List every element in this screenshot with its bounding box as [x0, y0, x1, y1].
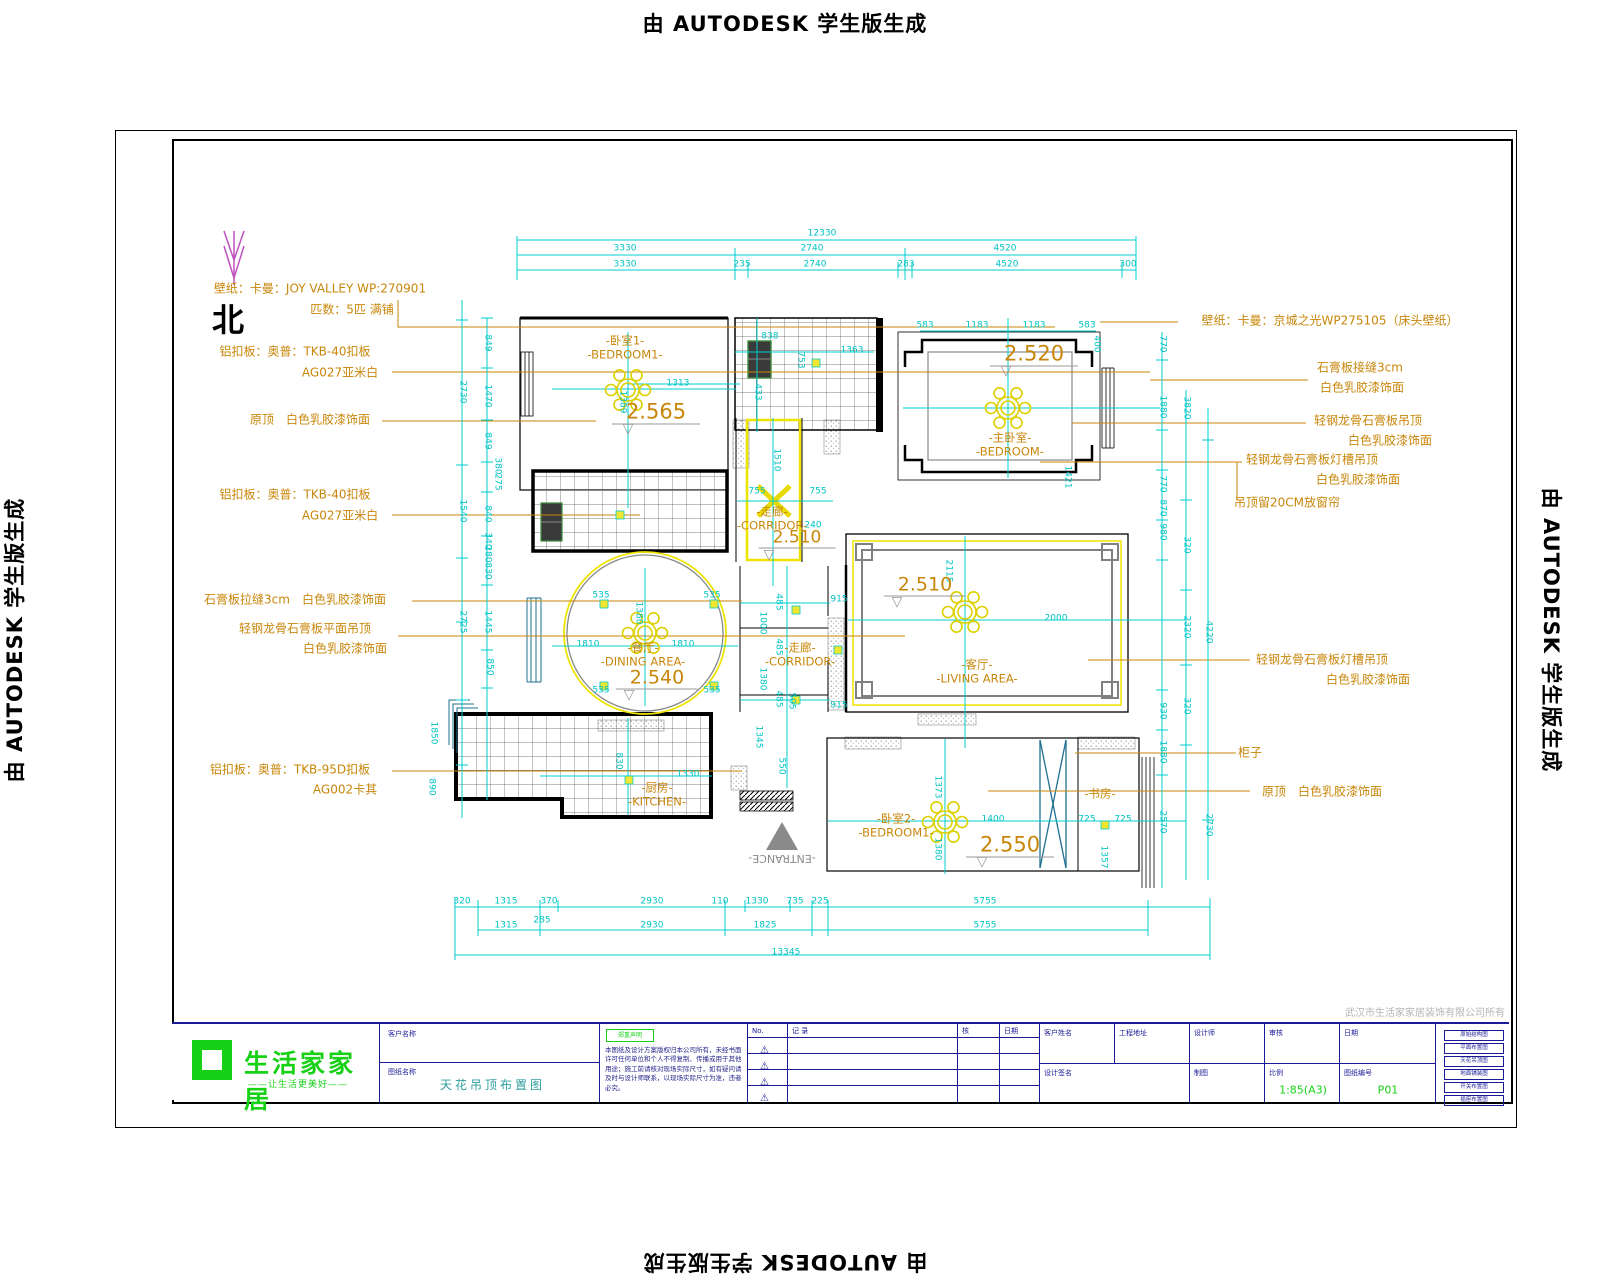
drawing-list: 原始结构图 平面布置图 天花吊顶图 地面铺装图 开关布置图 插座布置图 [1444, 1030, 1504, 1108]
check-field-label: 审核 [1269, 1028, 1283, 1038]
annotation-label: AG002卡其 [313, 783, 377, 796]
annotation-label: 原顶 白色乳胶漆饰面 [250, 413, 370, 426]
drawing-list-item: 天花吊顶图 [1444, 1056, 1504, 1067]
annotation-label: 白色乳胶漆饰面 [1320, 381, 1404, 394]
company-slogan: ——让生活更美好—— [248, 1077, 348, 1090]
drawing-list-item: 地面铺装图 [1444, 1069, 1504, 1080]
dimension-label: 915 [830, 596, 847, 605]
dimension-label: 890 [427, 778, 436, 795]
annotation-label: 原顶 白色乳胶漆饰面 [1262, 785, 1382, 798]
room-label-en: -BEDROOM1- [587, 349, 662, 361]
dimension-label: 2930 [641, 898, 664, 907]
notes-header: 郑重声明 [606, 1029, 654, 1042]
ceiling-level-value: 2.510 [759, 530, 836, 549]
dimension-label: 1330 [746, 898, 769, 907]
level-triangle-icon: ▽ [624, 688, 635, 702]
annotation-label: 匹数：5匹 满铺 [310, 303, 393, 316]
dimension-label: 400 [1092, 335, 1101, 352]
dimension-label: 1400 [982, 816, 1005, 825]
dimension-label: 2730 [1204, 814, 1213, 837]
dimension-label: 1357 [1099, 846, 1108, 869]
dimension-label: 1421 [1063, 466, 1072, 489]
drawing-name-label: 图纸名称 [388, 1067, 416, 1077]
dimension-label: 3330 [614, 245, 637, 254]
dimension-label: 485 [774, 690, 783, 707]
level-triangle-icon: ▽ [623, 422, 634, 436]
dimension-label: 1373 [933, 776, 942, 799]
room-label-cn: -走廊- [784, 642, 815, 654]
room-label-en: -BEDROOM1- [858, 827, 933, 839]
dimension-label: 2320 [1182, 616, 1191, 639]
annotation-label: 柜子 [1238, 746, 1262, 759]
dimension-label: 1445 [483, 611, 492, 634]
annotation-label: 白色乳胶漆饰面 [1316, 473, 1400, 486]
annotation-label: 轻钢龙骨石膏板灯槽吊顶 [1246, 453, 1378, 466]
dimension-label: 1380 [634, 602, 643, 625]
dimension-label: 4520 [994, 245, 1017, 254]
dimension-label: 535 [592, 592, 609, 601]
dimension-label: 12330 [808, 230, 837, 239]
dimension-label: 1315 [495, 898, 518, 907]
dimension-label: 433 [753, 383, 762, 400]
dimension-label: 980 [1158, 523, 1167, 540]
annotation-label: 壁纸：卡曼：京城之光WP275105（床头壁纸） [1202, 314, 1459, 327]
dimension-label: 1810 [577, 641, 600, 650]
annotation-label: 壁纸：卡曼：JOY VALLEY WP:270901 [214, 282, 426, 295]
sheet-field-label: 图纸编号 [1344, 1068, 1372, 1078]
dimension-label: 5755 [974, 898, 997, 907]
dimension-label: 830 [483, 562, 492, 579]
date-field-label: 日期 [1344, 1028, 1358, 1038]
signature-field-label: 设计签名 [1044, 1068, 1072, 1078]
annotation-label: 铝扣板：奥普：TKB-95D扣板 [210, 763, 370, 776]
dimension-label: 1380 [933, 838, 942, 861]
dimension-label: 280 [483, 545, 492, 562]
dimension-label: 275 [493, 473, 502, 490]
dimension-label: 2570 [1158, 811, 1167, 834]
north-label: 北 [212, 295, 244, 341]
room-label-cn: -走廊- [756, 506, 787, 518]
room-label-en: -LIVING AREA- [936, 673, 1017, 685]
annotation-label: AG027亚米白 [302, 366, 378, 379]
designer-field-label: 设计师 [1194, 1028, 1215, 1038]
drawing-list-item: 平面布置图 [1444, 1043, 1504, 1054]
drawing-list-item: 开关布置图 [1444, 1082, 1504, 1093]
dimension-label: 320 [1182, 536, 1191, 553]
annotation-label: 吊顶留20CM放窗帘 [1234, 496, 1340, 509]
dimension-label: 1540 [458, 500, 467, 523]
dimension-label: 1380 [758, 668, 767, 691]
dimension-label: 1183 [1023, 322, 1046, 331]
dimension-label: 838 [761, 333, 778, 342]
dimension-label: 849 [483, 334, 492, 351]
dimension-label: 535 [703, 592, 720, 601]
dimension-label: 3820 [1182, 397, 1191, 420]
annotation-label: 石膏板拉缝3cm 白色乳胶漆饰面 [204, 593, 386, 606]
room-label-en: -CORRIDOR- [765, 656, 835, 668]
dimension-label: 2740 [801, 245, 824, 254]
dimension-label: 915 [830, 702, 847, 711]
dimension-label: 4520 [996, 261, 1019, 270]
annotation-label: 轻钢龙骨石膏板平面吊顶 [239, 622, 371, 635]
cad-ceiling-plan-screenshot: { "watermark": { "text": "由 AUTODESK 学生版… [0, 0, 1600, 1280]
dimension-label: 505 [787, 692, 796, 709]
dimension-label: 380 [493, 457, 502, 474]
rev-no-header: No. [748, 1024, 788, 1038]
address-field-label: 工程地址 [1119, 1028, 1147, 1038]
dimension-label: 1313 [667, 380, 690, 389]
dimension-label: 5755 [974, 922, 997, 931]
room-label-cn: -客厅- [961, 659, 992, 671]
room-label-cn: -餐厅- [627, 642, 658, 654]
dimension-label: 2725 [458, 611, 467, 634]
title-block-fields: 客户姓名 工程地址 设计师 审核 日期 设计签名 制图 比例 1:85(A3) … [1040, 1024, 1436, 1102]
sheet-number: P01 [1378, 1084, 1399, 1097]
annotation-label: 轻钢龙骨石膏板吊顶 [1314, 414, 1422, 427]
copyright-note: 武汉市生活家家居装饰有限公司所有 [1345, 1004, 1505, 1019]
dimension-label: 485 [774, 638, 783, 655]
dimension-label: 285 [533, 917, 550, 926]
room-label-cn: -书房- [1084, 788, 1115, 800]
dimension-label: 1825 [754, 922, 777, 931]
level-triangle-icon: ▽ [977, 855, 988, 869]
dimension-label: 1315 [495, 922, 518, 931]
dimension-label: 770 [1158, 475, 1167, 492]
level-triangle-icon: ▽ [892, 595, 903, 609]
dimension-label: 830 [614, 752, 623, 769]
dimension-label: 320 [1182, 697, 1191, 714]
room-label-en: -KITCHEN- [628, 796, 686, 808]
room-label-cn: -卧室1- [606, 335, 645, 347]
rev-desc-header: 记 录 [788, 1024, 958, 1038]
dimension-label: 755 [809, 488, 826, 497]
dimension-label: 225 [811, 898, 828, 907]
dimension-label: 4220 [1204, 621, 1213, 644]
scale-field-label: 比例 [1269, 1068, 1283, 1078]
annotation-label: 铝扣板：奥普：TKB-40扣板 [219, 488, 370, 501]
level-triangle-icon: ▽ [1001, 364, 1012, 378]
dimension-label: 1810 [672, 641, 695, 650]
annotation-label: 石膏板接缝3cm [1317, 361, 1403, 374]
dimension-label: 1510 [772, 449, 781, 472]
dimension-label: 3330 [614, 261, 637, 270]
annotation-label: 白色乳胶漆饰面 [1348, 434, 1432, 447]
dimension-label: 849 [483, 432, 492, 449]
dimension-label: 583 [1078, 322, 1095, 331]
dimension-label: 725 [1078, 816, 1095, 825]
title-block-name-cell: 客户名称 图纸名称 天花吊顶布置图 [380, 1024, 600, 1102]
dimension-label: 870 [1158, 499, 1167, 516]
scale-value: 1:85(A3) [1279, 1084, 1327, 1097]
annotation-label: AG027亚米白 [302, 509, 378, 522]
dimension-label: 1850 [429, 722, 438, 745]
client-field-label: 客户姓名 [1044, 1028, 1072, 1038]
dimension-label: 753 [796, 351, 805, 368]
dimension-label: 1345 [754, 726, 763, 749]
title-block: 生活家家居 ——让生活更美好—— 客户名称 图纸名称 天花吊顶布置图 郑重声明 … [172, 1022, 1509, 1100]
dimension-label: 283 [897, 261, 914, 270]
dimension-label: 2740 [804, 261, 827, 270]
drawing-list-item: 插座布置图 [1444, 1095, 1504, 1106]
dimension-label: 235 [733, 261, 750, 270]
title-block-notes-cell: 郑重声明 本图纸及设计方案版权归本公司所有，未经书面许可任何单位和个人不得复制、… [600, 1024, 748, 1102]
dimension-label: 850 [485, 658, 494, 675]
notes-body: 本图纸及设计方案版权归本公司所有，未经书面许可任何单位和个人不得复制、传播或用于… [605, 1046, 745, 1093]
title-block-logo-cell: 生活家家居 ——让生活更美好—— [172, 1024, 380, 1102]
dimension-label: 1880 [1158, 396, 1167, 419]
dimension-label: 735 [786, 898, 803, 907]
drawing-title: 天花吊顶布置图 [440, 1076, 545, 1093]
dimension-label: 110 [711, 898, 728, 907]
annotation-label: 轻钢龙骨石膏板灯槽吊顶 [1256, 653, 1388, 666]
dimension-label: 535 [592, 687, 609, 696]
dimension-label: 2730 [458, 381, 467, 404]
dimension-label: 370 [540, 898, 557, 907]
annotation-label: -ENTRANCE- [748, 852, 815, 864]
annotation-label: 白色乳胶漆饰面 [303, 642, 387, 655]
dimension-label: 550 [777, 757, 786, 774]
dimension-label: 13345 [772, 949, 801, 958]
rev-date-header: 日期 [1000, 1024, 1040, 1038]
dimension-label: 2000 [1045, 615, 1068, 624]
room-label-cn: -卧室2- [877, 813, 916, 825]
dimension-label: 1183 [966, 322, 989, 331]
annotation-label: 白色乳胶漆饰面 [1326, 673, 1410, 686]
room-label-en: -BEDROOM- [976, 446, 1044, 458]
dimension-label: 583 [916, 322, 933, 331]
room-label-cn: -主卧室- [989, 432, 1032, 444]
dimension-label: 320 [453, 898, 470, 907]
annotation-label: 铝扣板：奥普：TKB-40扣板 [219, 345, 370, 358]
company-logo-icon [192, 1040, 232, 1080]
client-name-label: 客户名称 [388, 1029, 416, 1039]
dimension-label: 1363 [841, 347, 864, 356]
dimension-label: 930 [1158, 702, 1167, 719]
dimension-label: 1000 [758, 612, 767, 635]
revision-warning-icon: ⚠ [760, 1093, 769, 1104]
dimension-label: 485 [774, 593, 783, 610]
dimension-label: 755 [748, 488, 765, 497]
dimension-label: 840 [483, 505, 492, 522]
rev-by-header: 核 [958, 1024, 1000, 1038]
dimension-label: 770 [1158, 335, 1167, 352]
dimension-label: 2930 [641, 922, 664, 931]
dimension-label: 1330 [677, 771, 700, 780]
level-triangle-icon: ▽ [764, 548, 775, 562]
dimension-label: 1470 [483, 385, 492, 408]
dimension-label: 1880 [1158, 741, 1167, 764]
dimension-label: 300 [1119, 261, 1136, 270]
room-label-cn: -厨房- [641, 782, 672, 794]
revision-table: No. 记 录 核 日期 ⚠ ⚠ ⚠ ⚠ [748, 1024, 1040, 1102]
dimension-label: 725 [1114, 816, 1131, 825]
drawing-list-item: 原始结构图 [1444, 1030, 1504, 1041]
draftsman-field-label: 制图 [1194, 1068, 1208, 1078]
dimension-label: 535 [703, 687, 720, 696]
